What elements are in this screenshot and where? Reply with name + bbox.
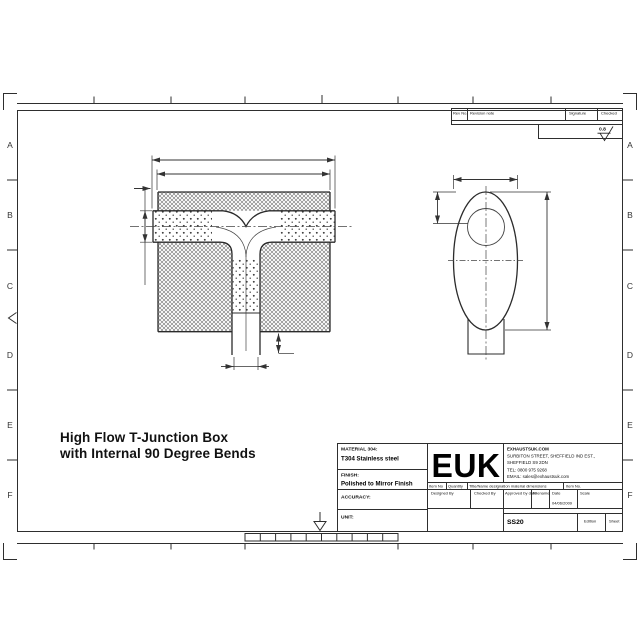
revision-note-header: Revision note <box>470 111 494 116</box>
frame-row-label-left-f: F <box>5 490 15 500</box>
title-name-header: Title/Name designation material dimensio… <box>469 484 546 489</box>
item-no2-header: Item No. <box>566 484 581 489</box>
surface-roughness-value: 0.8 <box>599 126 606 132</box>
crop-mark-top-right <box>623 94 637 111</box>
company-address: EXHAUSTSUK.COM SURBITON STREET, SHEFFIEL… <box>507 446 595 480</box>
frame-row-label-right-d: D <box>625 350 635 360</box>
accuracy-label: ACCURACY: <box>341 494 371 500</box>
edition-label: Edition <box>584 519 596 524</box>
frame-row-label-right-b: B <box>625 210 635 220</box>
right-ticks <box>623 180 633 460</box>
left-ticks <box>7 180 17 460</box>
company-address-line1: SURBITON STREET, SHEFFIELD IND EST., <box>507 453 595 460</box>
frame-row-label-left-b: B <box>5 210 15 220</box>
drawing-title-line2: with Internal 90 Degree Bends <box>60 446 256 462</box>
approved-by-header: Approved by date <box>505 491 536 496</box>
company-tel: TEL: 0800 975 9268 <box>507 467 595 474</box>
drawing-sheet: A B C D E F A B C D E F Rev No. Revision… <box>0 0 640 640</box>
top-margin-line <box>17 103 623 104</box>
company-website: EXHAUSTSUK.COM <box>507 446 595 453</box>
company-email: EMAIL: sales@exhaustsuk.com <box>507 474 595 481</box>
company-address-line2: SHEFFIELD S9 2DN <box>507 460 595 467</box>
frame-row-label-right-f: F <box>625 490 635 500</box>
signature-header: Signature <box>569 111 586 116</box>
unit-label: UNIT: <box>341 514 354 520</box>
frame-row-label-right-a: A <box>625 140 635 150</box>
date-header: Date <box>552 491 560 496</box>
frame-row-label-left-a: A <box>5 140 15 150</box>
crop-mark-bottom-left <box>4 543 18 560</box>
material-value: T304 Stainless steel <box>341 455 399 462</box>
left-center-mark <box>9 313 17 324</box>
frame-row-label-right-e: E <box>625 420 635 430</box>
signature-area-cell <box>427 508 504 532</box>
drawing-title-line1: High Flow T-Junction Box <box>60 430 256 446</box>
bottom-margin-line <box>17 543 623 544</box>
drawing-number: SS20 <box>507 518 524 526</box>
quantity-header: Quantity <box>448 484 463 489</box>
metric-reference-ruler <box>245 534 398 542</box>
checked-header: Checked <box>601 111 617 116</box>
unit-cell <box>337 509 428 532</box>
rev-no-header: Rev No. <box>453 111 467 116</box>
sheet-label: Sheet <box>609 519 619 524</box>
crop-mark-bottom-right <box>623 543 637 560</box>
finish-value: Polished to Mirror Finish <box>341 480 413 487</box>
designed-by-header: Designed By <box>431 491 454 496</box>
frame-row-label-right-c: C <box>625 281 635 291</box>
surface-finish-box <box>538 124 623 139</box>
material-label: MATERIAL 304: <box>341 446 377 452</box>
checked-by-header: Checked By <box>474 491 496 496</box>
date-value: 04/06/2009 <box>552 501 572 506</box>
scale-header: Scale <box>580 491 590 496</box>
top-ticks <box>94 95 551 103</box>
item-no-header: Item No <box>429 484 443 489</box>
company-logo: EUK <box>429 447 503 485</box>
finish-label: FINISH: <box>341 472 359 478</box>
frame-row-label-left-c: C <box>5 281 15 291</box>
frame-row-label-left-d: D <box>5 350 15 360</box>
crop-mark-top-left <box>4 94 18 111</box>
frame-row-label-left-e: E <box>5 420 15 430</box>
drawing-title: High Flow T-Junction Box with Internal 9… <box>60 430 256 461</box>
filename-header: Filename <box>533 491 549 496</box>
